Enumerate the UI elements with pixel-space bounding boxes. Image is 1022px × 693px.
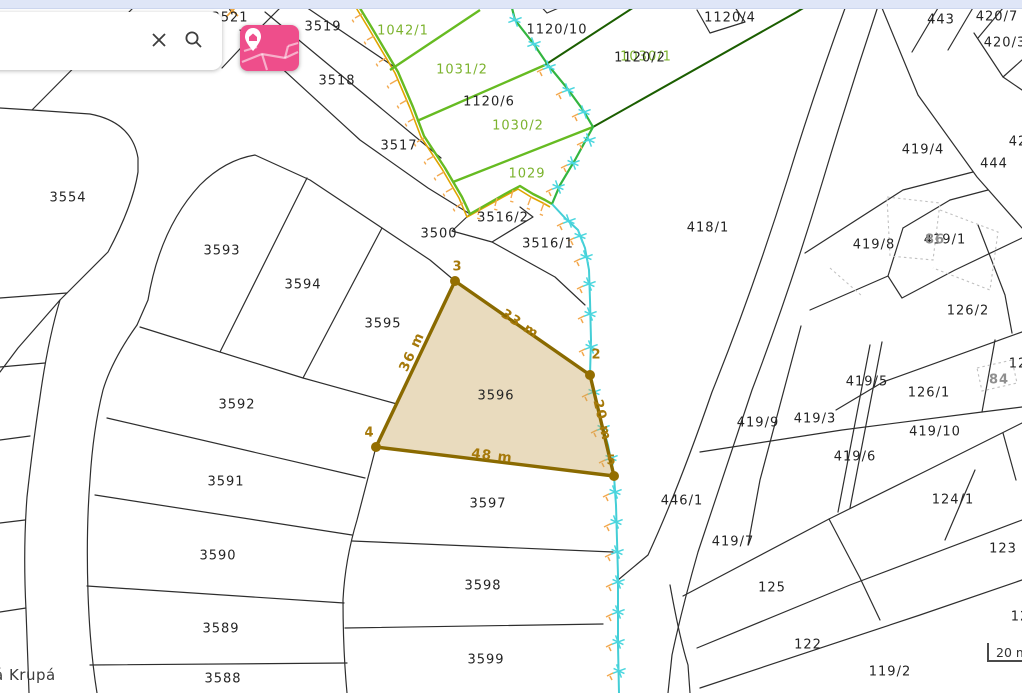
map-label: 3590 [199,549,236,564]
vertex-dot [371,442,381,452]
map-label: 1120/4 [704,11,756,26]
map-label: 3591 [207,475,244,490]
map-label: 3595 [364,317,401,332]
map-label: 3554 [49,191,86,206]
map-label: 126/2 [947,304,989,319]
map-label: 12 [1011,610,1022,625]
map-label: 3516/2 [477,211,529,226]
map-label: 3589 [202,622,239,637]
map-label: 122 [794,638,822,653]
map-label: 444 [980,157,1008,172]
map-label: 3597 [469,497,506,512]
search-icon [184,30,203,52]
map-label: 1042/1 [377,24,429,39]
map-label: 3500 [420,227,457,242]
map-label: 419/5 [846,375,888,390]
vertex-dot [450,276,460,286]
municipality-label: á Krupá [0,666,56,684]
map-label: 2 [591,348,600,363]
location-pin-icon [245,28,261,51]
map-style-button[interactable] [240,25,299,71]
map-label: 125 [758,581,786,596]
map-label: 119/2 [869,665,911,680]
map-label: 419/9 [737,416,779,431]
map-label: 5 [606,454,615,469]
building-outlines [830,197,1017,391]
close-icon [150,31,168,52]
highlighted-parcel-3596[interactable] [376,281,614,476]
map-label: 419/3 [794,412,836,427]
map-label: 3592 [218,398,255,413]
map-label: 418/1 [687,221,729,236]
map-label: 3 [452,260,461,275]
search-input[interactable] [0,12,222,70]
clear-search-button[interactable] [142,24,176,58]
map-label: 3517 [380,139,417,154]
browser-top-bar [0,0,1022,9]
map-label: 84 [989,373,1009,388]
map-label: 126/1 [908,386,950,401]
map-label: 1031/2 [436,63,488,78]
scale-bar-label: 20 m [996,645,1022,660]
map-label: 1120/10 [526,23,587,38]
map-label: 3596 [477,389,514,404]
map-label: 1030/2 [492,119,544,134]
cadastral-map-app: { "ui": { "search": { "placeholder": "",… [0,0,1022,693]
map-label: 3594 [284,278,321,293]
map-label: 1120/2 [614,51,666,66]
map-label: 12 [1009,357,1022,372]
map-label: 3588 [204,672,241,687]
map-label: 124/1 [932,493,974,508]
map-label: 443 [927,13,955,28]
map-label: 123 [989,542,1017,557]
map-label: 3598 [464,579,501,594]
map-label: 420/3 [984,36,1022,51]
map-label: 419/10 [909,425,961,440]
map-canvas[interactable]: 3254 33 m36 m20 m48 m 352135193518351735… [0,0,1022,693]
map-label: 42 [1009,135,1022,150]
search-button[interactable] [176,24,210,58]
map-label: 3519 [304,20,341,35]
scale-bar: 20 m [988,643,1022,661]
map-label: 3518 [318,74,355,89]
vertex-dot [609,471,619,481]
map-label: 3516/1 [522,237,574,252]
map-label: 1029 [508,167,545,182]
map-label: 419/8 [853,238,895,253]
map-label: 86 [925,233,945,248]
map-label: 1120/6 [463,95,515,110]
map-label: 419/7 [712,535,754,550]
map-label: 3593 [203,244,240,259]
map-label: 419/6 [834,450,876,465]
map-label: 4 [364,426,373,441]
vertex-dot [585,370,595,380]
map-label: 446/1 [661,494,703,509]
map-label: 419/4 [902,143,944,158]
map-label: 420/7 [976,10,1018,25]
map-label: 3599 [467,653,504,668]
